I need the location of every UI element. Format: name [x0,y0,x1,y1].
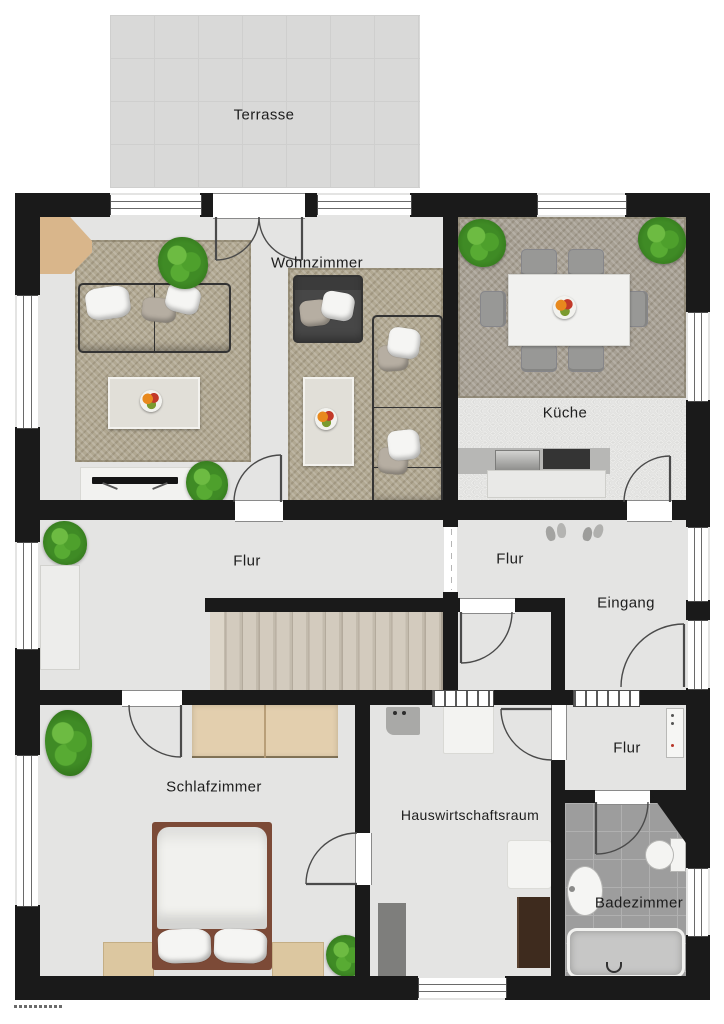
bed-duvet-icon [157,827,267,929]
plant-icon [638,217,686,264]
front-door-sidelight [688,620,708,690]
dining-chair-icon [521,344,557,372]
utility-panel-icon [507,840,552,889]
wall [305,193,317,217]
wall [205,598,460,612]
door-threshold [595,790,650,805]
window [17,755,38,907]
washing-machine-knob-icon [393,711,397,715]
wall [672,500,686,520]
wall [15,976,418,1000]
wall [625,193,710,217]
faucet-icon [569,886,575,892]
radiator-valve-icon [671,744,674,747]
door-threshold [235,500,283,522]
room-label-flur-eingang: Flur [496,552,523,567]
wall [638,690,686,705]
window [110,195,202,215]
toilet-icon [645,840,674,870]
wall [686,600,710,620]
fine-print [14,1005,62,1008]
door-threshold [460,598,515,614]
nightstand-icon [272,942,324,978]
wall [492,690,573,705]
window [17,542,38,650]
window [317,195,412,215]
window [688,527,708,602]
window [418,978,507,998]
plant-icon [458,219,506,267]
hall-sideboard-icon [40,565,80,670]
wall [458,500,627,520]
kitchen-sink-icon [495,450,540,471]
fruit-bowl-icon [315,408,337,430]
wall [40,500,235,520]
door-threshold [122,690,182,707]
dining-chair-icon [480,291,506,327]
wall [355,885,370,976]
room-label-terrasse: Terrasse [234,108,295,123]
room-label-schlafzimmer: Schlafzimmer [166,780,262,795]
door-threshold [213,193,305,219]
wall [505,976,710,1000]
wall [443,217,458,527]
wardrobe-icon [192,705,338,758]
room-label-wohnzimmer: Wohnzimmer [271,256,363,271]
grey-cabinet-icon [378,903,406,976]
door-threshold [627,500,672,522]
bed-pillow-icon [157,928,211,964]
window [537,195,627,215]
freezer-icon [443,705,494,754]
glass-door [573,690,640,707]
wall [551,612,565,690]
washing-machine-knob-icon [402,711,406,715]
wall [410,193,537,217]
room-label-badezimmer: Badezimmer [595,896,683,911]
wall [686,400,710,527]
radiator-knob-icon [671,714,674,717]
dining-chair-icon [521,249,557,277]
radiator-knob-icon [671,722,674,725]
wall [15,217,40,295]
plant-icon [43,521,87,565]
tv-sideboard-icon [80,467,192,504]
door-threshold [355,833,372,885]
wall [283,500,443,520]
window [688,312,708,402]
window [688,868,708,937]
dining-chair-icon [568,249,604,277]
room-label-hauswirtschaftsraum: Hauswirtschaftsraum [401,808,539,822]
kitchen-cabinet-icon [487,470,606,498]
window [17,295,38,429]
wall [15,427,40,542]
pillow-icon [386,326,422,360]
stove-icon [543,449,590,469]
tv-icon [92,477,178,484]
room-label-kueche: Küche [543,406,588,421]
door-threshold [551,705,567,760]
room-label-flur-klein: Flur [613,741,640,756]
wall [182,690,432,705]
plant-icon [158,237,208,289]
wall [686,217,710,312]
plant-icon [45,710,92,776]
pillow-icon [387,428,422,461]
terrace-area [110,15,420,188]
radiator-icon [666,708,684,758]
fruit-bowl-icon [140,390,162,412]
nightstand-icon [103,942,154,978]
bathtub-icon [567,928,685,978]
wall [355,705,370,833]
floor-plan: Terrasse Wohnzimmer Küche Flur Flur Eing… [0,0,724,1024]
room-label-eingang: Eingang [597,596,655,611]
bed-pillow-icon [213,928,267,964]
wall [515,598,565,612]
wall [15,690,122,705]
staircase [210,612,443,690]
wall-opening [444,527,457,592]
room-label-flur-haupt: Flur [233,554,260,569]
fruit-bowl-icon [553,296,576,319]
dark-cabinet-icon [517,897,550,968]
wall [15,193,110,217]
wall [565,790,595,803]
glass-panel [432,690,494,707]
dining-chair-icon [568,344,604,372]
wall [551,760,565,976]
wall [686,688,710,868]
